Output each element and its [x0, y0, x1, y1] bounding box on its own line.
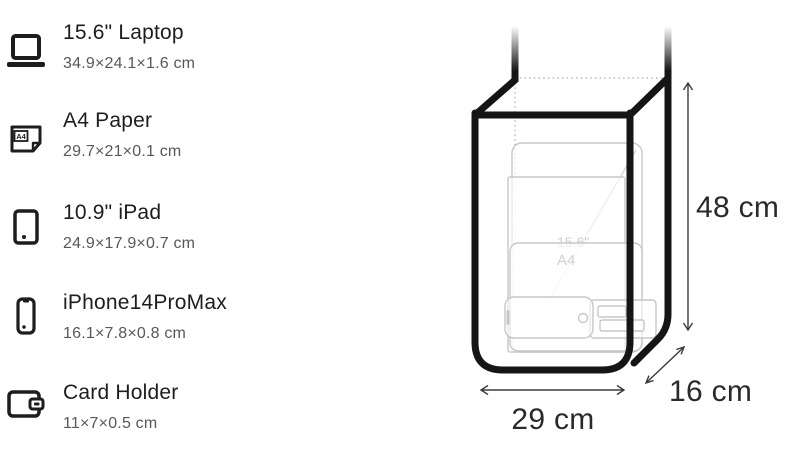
width-label: 29 cm [511, 403, 594, 436]
item-name: iPhone14ProMax [63, 290, 227, 315]
bag-capacity-figure: 15.6" Laptop 34.9×24.1×1.6 cm A4 A4 Pape… [0, 0, 800, 455]
bag-dimension-diagram: 15.6" A4 48 cm [440, 0, 800, 455]
ghost-iphone-camera [579, 314, 588, 323]
item-name: 10.9" iPad [63, 200, 195, 225]
bag-top-left-edge [475, 80, 515, 115]
height-dimension: 48 cm [684, 83, 780, 330]
a4-icon-label: A4 [16, 132, 26, 141]
bag-top-right-edge [630, 78, 668, 115]
ghost-iphone-button [507, 310, 510, 325]
item-name: 15.6" Laptop [63, 20, 195, 45]
right-strap [665, 26, 672, 82]
width-dimension: 29 cm [481, 386, 624, 437]
ghost-card-holder-pocket [598, 306, 626, 317]
item-name: A4 Paper [63, 108, 181, 133]
item-dimensions: 24.9×17.9×0.7 cm [63, 234, 195, 253]
item-dimensions: 34.9×24.1×1.6 cm [63, 54, 195, 73]
list-item-a4-paper: A4 A4 Paper 29.7×21×0.1 cm [0, 108, 440, 161]
height-label: 48 cm [696, 191, 779, 224]
item-dimensions: 11×7×0.5 cm [63, 414, 178, 433]
a4-paper-icon: A4 [8, 124, 44, 154]
depth-dimension: 16 cm [646, 347, 752, 408]
ghost-card-holder-slot [600, 320, 644, 331]
list-item-laptop: 15.6" Laptop 34.9×24.1×1.6 cm [0, 20, 440, 73]
depth-label: 16 cm [669, 375, 752, 408]
tablet-icon [11, 208, 41, 246]
item-name: Card Holder [63, 380, 178, 405]
left-strap [512, 26, 519, 82]
ghost-a4-label: A4 [557, 252, 575, 269]
item-dimensions: 29.7×21×0.1 cm [63, 142, 181, 161]
list-item-ipad: 10.9" iPad 24.9×17.9×0.7 cm [0, 200, 440, 253]
item-dimensions: 16.1×7.8×0.8 cm [63, 324, 227, 343]
list-item-iphone: iPhone14ProMax 16.1×7.8×0.8 cm [0, 290, 440, 343]
laptop-icon [4, 32, 48, 70]
list-item-card-holder: Card Holder 11×7×0.5 cm [0, 380, 440, 433]
phone-icon [14, 296, 38, 336]
fits-item-list: 15.6" Laptop 34.9×24.1×1.6 cm A4 A4 Pape… [0, 0, 440, 455]
wallet-icon [6, 388, 46, 420]
